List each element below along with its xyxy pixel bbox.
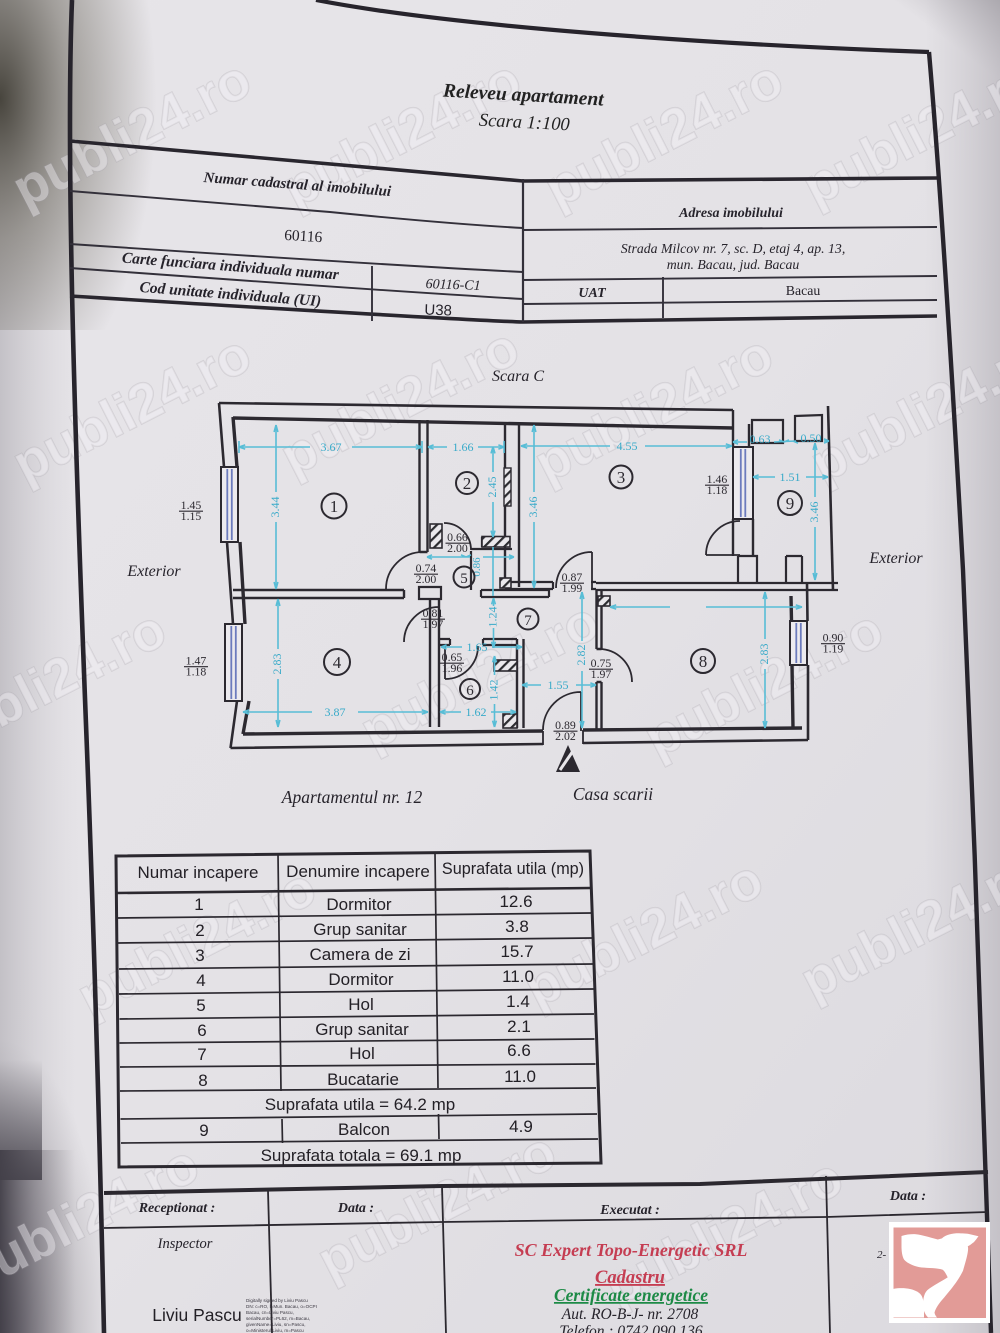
svg-text:Numar incapere: Numar incapere: [138, 863, 259, 882]
svg-text:2.45: 2.45: [485, 477, 499, 498]
svg-text:Data :: Data :: [337, 1201, 374, 1216]
svg-text:DN: c=RO, l=Mun. Bacau, o=OCPI: DN: c=RO, l=Mun. Bacau, o=OCPI: [246, 1304, 317, 1309]
svg-text:3: 3: [617, 468, 626, 487]
svg-text:Bacau, cn=Liviu Pascu,: Bacau, cn=Liviu Pascu,: [246, 1310, 294, 1315]
svg-text:Hol: Hol: [349, 1044, 375, 1063]
svg-text:11.0: 11.0: [502, 967, 534, 986]
svg-text:o=Ministerul-Liviu, m=Pascu: o=Ministerul-Liviu, m=Pascu: [246, 1328, 304, 1333]
svg-text:givenName=Liviu, sn=Pascu,: givenName=Liviu, sn=Pascu,: [246, 1322, 306, 1327]
svg-text:Casa scarii: Casa scarii: [573, 784, 653, 804]
svg-text:3: 3: [195, 946, 204, 965]
svg-text:2: 2: [195, 921, 204, 940]
svg-text:1.66: 1.66: [453, 440, 474, 454]
svg-text:60116-C1: 60116-C1: [425, 277, 480, 294]
svg-text:2: 2: [463, 474, 472, 493]
svg-text:Strada Milcov nr. 7, sc. D, et: Strada Milcov nr. 7, sc. D, etaj 4, ap. …: [621, 241, 846, 256]
svg-text:Hol: Hol: [348, 995, 374, 1014]
svg-text:Grup sanitar: Grup sanitar: [315, 1020, 409, 1039]
svg-text:2.83: 2.83: [757, 644, 771, 665]
svg-text:Balcon: Balcon: [338, 1120, 390, 1139]
svg-text:2.1: 2.1: [507, 1017, 531, 1036]
svg-text:Adresa imobilului: Adresa imobilului: [678, 206, 783, 221]
svg-text:3.44: 3.44: [268, 497, 282, 518]
svg-text:9: 9: [199, 1121, 208, 1140]
svg-text:4.9: 4.9: [509, 1117, 533, 1136]
svg-text:15.7: 15.7: [500, 942, 533, 961]
svg-text:Dormitor: Dormitor: [328, 970, 394, 989]
svg-text:6: 6: [197, 1021, 206, 1040]
svg-text:1.24: 1.24: [486, 607, 500, 628]
svg-text:7: 7: [197, 1045, 206, 1064]
svg-text:1.42: 1.42: [487, 680, 501, 701]
svg-text:7: 7: [524, 613, 532, 629]
svg-text:3.46: 3.46: [526, 497, 540, 518]
svg-text:serialNumber=PL62, m=Bacau,: serialNumber=PL62, m=Bacau,: [246, 1316, 310, 1321]
svg-text:Denumire incapere: Denumire incapere: [286, 862, 430, 881]
svg-text:2.00: 2.00: [416, 572, 437, 586]
svg-text:1.96: 1.96: [442, 661, 463, 675]
svg-text:3.67: 3.67: [321, 440, 342, 454]
svg-text:1.62: 1.62: [466, 705, 487, 719]
svg-text:Suprafata totala = 69.1 mp: Suprafata totala = 69.1 mp: [261, 1146, 462, 1165]
svg-text:1.65: 1.65: [467, 640, 488, 654]
svg-text:1.18: 1.18: [707, 483, 728, 497]
svg-text:4.55: 4.55: [617, 439, 638, 453]
svg-text:Receptionat :: Receptionat :: [138, 1201, 216, 1216]
svg-text:Suprafata utila = 64.2 mp: Suprafata utila = 64.2 mp: [265, 1095, 455, 1114]
svg-text:Telefon : 0742 090 136: Telefon : 0742 090 136: [559, 1323, 702, 1333]
svg-text:0.50: 0.50: [801, 431, 822, 445]
svg-text:1: 1: [194, 895, 203, 914]
svg-text:Digitally signed by Liviu Pasc: Digitally signed by Liviu Pascu: [246, 1298, 308, 1303]
svg-text:1.19: 1.19: [823, 642, 844, 656]
svg-text:1.4: 1.4: [506, 992, 530, 1011]
svg-text:Data :: Data :: [889, 1189, 926, 1204]
svg-text:1.18: 1.18: [186, 665, 207, 679]
svg-text:Scara C: Scara C: [492, 368, 544, 385]
svg-text:Executat :: Executat :: [599, 1203, 660, 1218]
svg-text:Exterior: Exterior: [868, 550, 923, 567]
svg-text:Inspector: Inspector: [157, 1236, 213, 1252]
svg-text:3.46: 3.46: [807, 502, 821, 523]
svg-text:5: 5: [460, 571, 468, 587]
svg-text:Apartamentul nr. 12: Apartamentul nr. 12: [281, 787, 423, 807]
svg-text:1.97: 1.97: [423, 617, 444, 631]
svg-text:mun. Bacau, jud. Bacau: mun. Bacau, jud. Bacau: [667, 257, 800, 272]
svg-text:4: 4: [333, 653, 342, 672]
svg-text:2-: 2-: [877, 1249, 887, 1261]
svg-text:Bucatarie: Bucatarie: [327, 1070, 399, 1089]
svg-text:Aut. RO-B-J- nr. 2708: Aut. RO-B-J- nr. 2708: [561, 1306, 699, 1323]
svg-text:1.55: 1.55: [548, 678, 569, 692]
svg-text:12.6: 12.6: [499, 892, 532, 911]
svg-text:UAT: UAT: [578, 286, 607, 301]
svg-text:Grup sanitar: Grup sanitar: [313, 920, 407, 939]
svg-text:60116: 60116: [284, 227, 323, 246]
svg-text:1: 1: [330, 497, 339, 516]
svg-text:Exterior: Exterior: [126, 563, 181, 580]
svg-text:11.0: 11.0: [504, 1067, 536, 1086]
svg-text:2.00: 2.00: [447, 541, 468, 555]
svg-text:4: 4: [196, 971, 205, 990]
svg-text:Bacau: Bacau: [786, 283, 821, 298]
svg-text:6: 6: [466, 683, 474, 699]
svg-text:0.63: 0.63: [750, 432, 771, 446]
svg-text:Liviu Pascu: Liviu Pascu: [152, 1305, 242, 1325]
svg-text:U38: U38: [424, 302, 452, 320]
svg-text:2.02: 2.02: [555, 729, 576, 743]
svg-text:2.82: 2.82: [574, 645, 588, 666]
svg-text:5: 5: [196, 996, 205, 1015]
svg-text:Suprafata utila (mp): Suprafata utila (mp): [442, 860, 584, 878]
svg-text:Certificate energetice: Certificate energetice: [554, 1285, 708, 1305]
svg-text:1.99: 1.99: [562, 581, 583, 595]
svg-text:1.51: 1.51: [780, 470, 801, 484]
svg-text:1.97: 1.97: [591, 667, 612, 681]
svg-text:3.87: 3.87: [325, 705, 346, 719]
svg-text:Camera de zi: Camera de zi: [309, 945, 410, 964]
svg-text:8: 8: [198, 1071, 207, 1090]
svg-text:1.15: 1.15: [181, 509, 202, 523]
svg-text:SC Expert Topo-Energetic SRL: SC Expert Topo-Energetic SRL: [515, 1240, 748, 1260]
svg-text:6.6: 6.6: [507, 1041, 531, 1060]
svg-text:9: 9: [786, 494, 795, 513]
svg-text:2.83: 2.83: [270, 654, 284, 675]
svg-text:Dormitor: Dormitor: [326, 895, 392, 914]
svg-text:8: 8: [699, 652, 708, 671]
svg-text:3.8: 3.8: [505, 917, 529, 936]
svg-text:0.86: 0.86: [471, 557, 483, 577]
